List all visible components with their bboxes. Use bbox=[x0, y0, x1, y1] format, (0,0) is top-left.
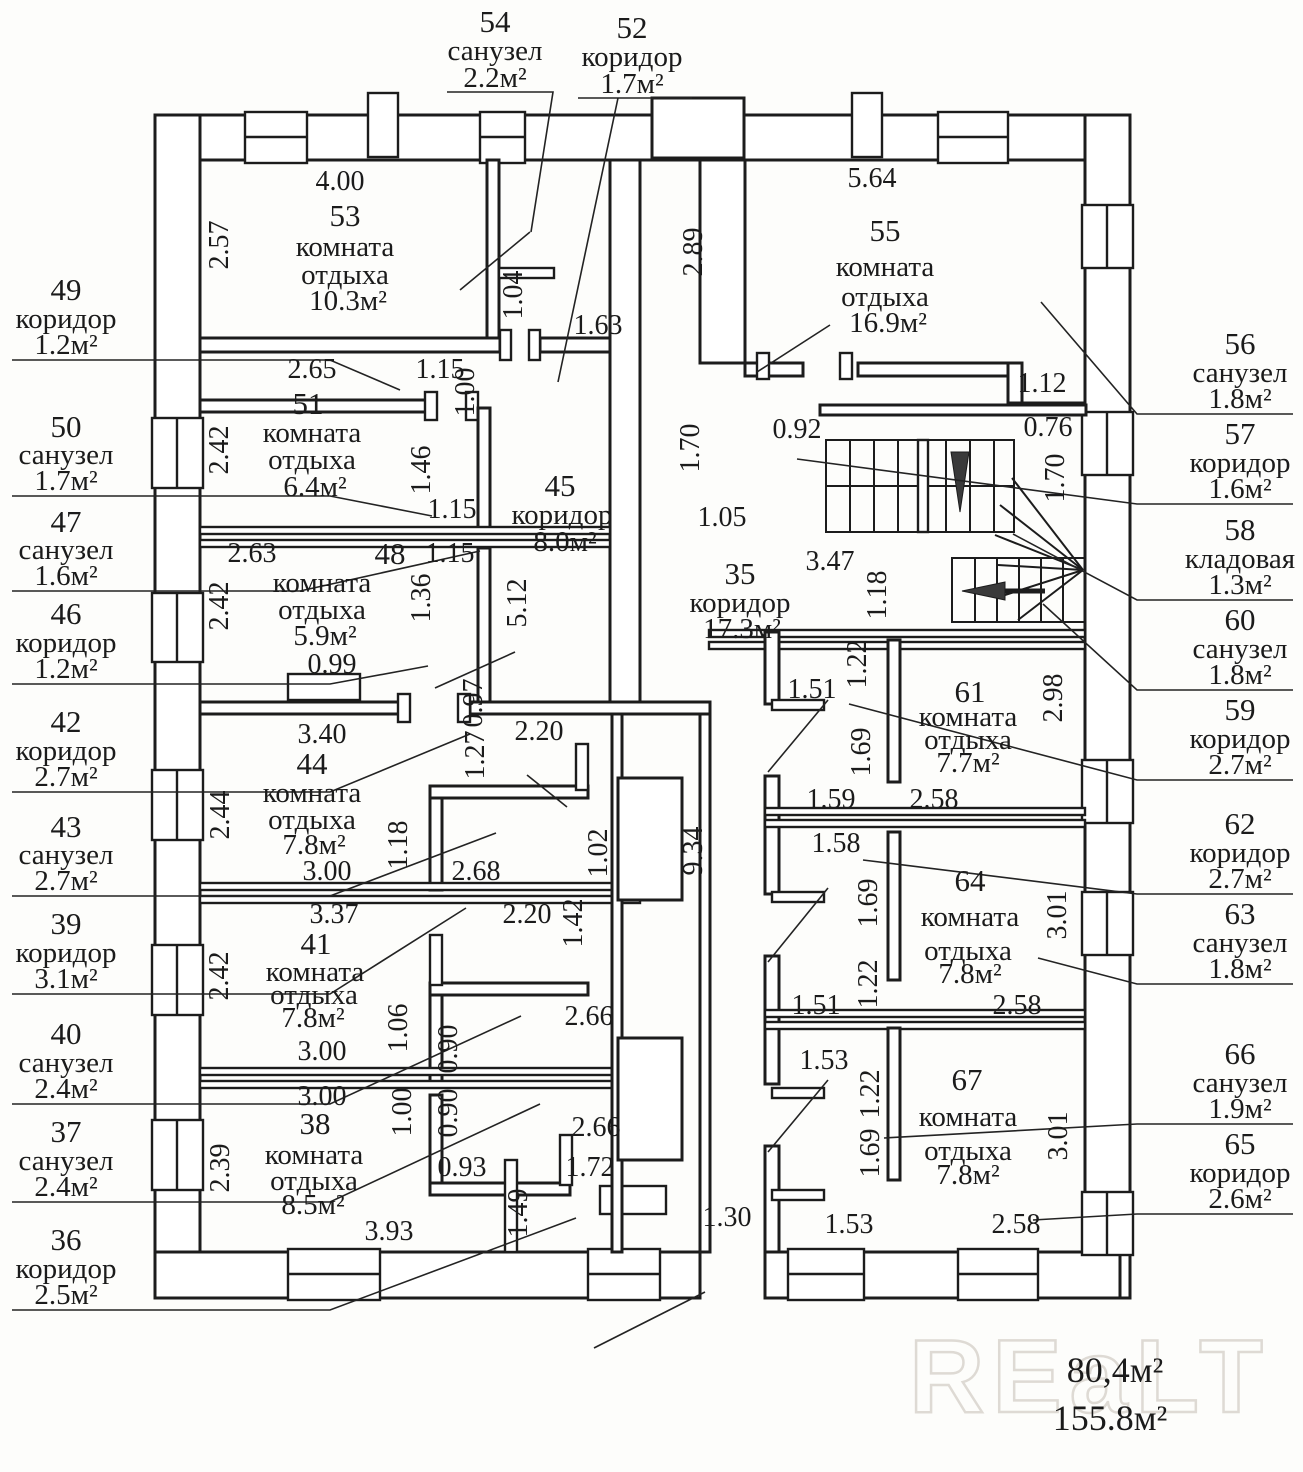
dim-label: 2.63 bbox=[228, 538, 277, 569]
dim-label: 2.20 bbox=[515, 716, 564, 747]
floor-plan-page: REaLT bbox=[0, 0, 1303, 1472]
dim-label: 1.53 bbox=[825, 1209, 874, 1240]
room-35-number: 35 bbox=[725, 556, 756, 591]
callout-43-area: 2.7м² bbox=[34, 865, 98, 897]
callout-50-area: 1.7м² bbox=[34, 465, 98, 497]
callout-59-area: 2.7м² bbox=[1208, 749, 1272, 781]
dim-label: 1.49 bbox=[503, 1189, 534, 1238]
room-53-number: 53 bbox=[330, 198, 361, 233]
room-64-name1: комната bbox=[921, 901, 1020, 933]
room-44-number: 44 bbox=[297, 746, 329, 781]
dim-label: 3.00 bbox=[298, 1081, 347, 1112]
room-64-area: 7.8м² bbox=[938, 958, 1002, 990]
stair-arrow-left bbox=[962, 582, 1005, 600]
dim-label: 0.97 bbox=[458, 679, 489, 728]
callout-47-area: 1.6м² bbox=[34, 560, 98, 592]
dim-label: 3.00 bbox=[298, 1036, 347, 1067]
room-38-area: 8.5м² bbox=[281, 1189, 345, 1221]
dim-label: 2.42 bbox=[204, 426, 235, 475]
dim-label: 1.51 bbox=[792, 990, 841, 1021]
room-64-number: 64 bbox=[955, 863, 987, 898]
callout-39-area: 3.1м² bbox=[34, 963, 98, 995]
dim-label: 1.42 bbox=[558, 899, 589, 948]
room-55-name1: комната bbox=[836, 251, 935, 283]
dim-label: 2.39 bbox=[205, 1144, 236, 1193]
dim-label: 3.47 bbox=[806, 546, 855, 577]
callout-42-number: 42 bbox=[51, 704, 82, 739]
dim-label: 1.69 bbox=[855, 1129, 886, 1178]
dim-label: 2.66 bbox=[565, 1001, 614, 1032]
dim-label: 2.58 bbox=[992, 1209, 1041, 1240]
callout-60-number: 60 bbox=[1225, 602, 1256, 637]
dim-label: 1.53 bbox=[800, 1045, 849, 1076]
total-area-lower: 155.8м² bbox=[1053, 1398, 1168, 1438]
callout-37-area: 2.4м² bbox=[34, 1171, 98, 1203]
callout-57-number: 57 bbox=[1225, 416, 1256, 451]
callout-36-number: 36 bbox=[51, 1222, 82, 1257]
callout-46-area: 1.2м² bbox=[34, 653, 98, 685]
callout-65-number: 65 bbox=[1225, 1126, 1256, 1161]
dim-label: 2.89 bbox=[678, 228, 709, 277]
dim-label: 0.90 bbox=[433, 1025, 464, 1074]
room-51-area: 6.4м² bbox=[283, 471, 347, 503]
room-45-number: 45 bbox=[545, 468, 576, 503]
dim-label: 1.02 bbox=[583, 829, 614, 878]
dim-label: 0.93 bbox=[438, 1152, 487, 1183]
dim-label: 3.01 bbox=[1042, 891, 1073, 940]
room-55-number: 55 bbox=[870, 213, 901, 248]
dim-label: 1.27 bbox=[460, 731, 491, 780]
dim-label: 1.12 bbox=[1018, 368, 1067, 399]
dim-label: 2.20 bbox=[503, 899, 552, 930]
callout-54-area: 2.2м² bbox=[463, 62, 527, 94]
callout-58-number: 58 bbox=[1225, 512, 1256, 547]
dim-label: 1.06 bbox=[383, 1004, 414, 1053]
callout-62-number: 62 bbox=[1225, 806, 1256, 841]
room-67-number: 67 bbox=[952, 1062, 983, 1097]
dim-label: 1.05 bbox=[698, 502, 747, 533]
dim-label: 1.30 bbox=[703, 1202, 752, 1233]
dim-label: 1.70 bbox=[1040, 454, 1071, 503]
dim-label: 1.69 bbox=[853, 879, 884, 928]
callout-54-number: 54 bbox=[480, 4, 512, 39]
callout-42-area: 2.7м² bbox=[34, 761, 98, 793]
callout-66-area: 1.9м² bbox=[1208, 1093, 1272, 1125]
dim-label: 1.22 bbox=[853, 960, 884, 1009]
dim-label: 5.12 bbox=[502, 579, 533, 628]
dim-label: 1.36 bbox=[406, 574, 437, 623]
callout-49-area: 1.2м² bbox=[34, 329, 98, 361]
dim-label: 1.59 bbox=[807, 784, 856, 815]
dim-label: 9.34 bbox=[678, 827, 709, 876]
dim-label: 3.01 bbox=[1043, 1112, 1074, 1161]
dim-label: 3.40 bbox=[298, 719, 347, 750]
dim-label: 1.69 bbox=[846, 728, 877, 777]
room-55-area: 16.9м² bbox=[849, 307, 927, 339]
dim-label: 1.22 bbox=[842, 640, 873, 689]
callout-65-area: 2.6м² bbox=[1208, 1183, 1272, 1215]
callout-40-area: 2.4м² bbox=[34, 1073, 98, 1105]
dim-label: 1.18 bbox=[383, 821, 414, 870]
callout-56-number: 56 bbox=[1225, 326, 1256, 361]
callout-57-area: 1.6м² bbox=[1208, 473, 1272, 505]
room-45-area: 8.0м² bbox=[533, 526, 597, 558]
dim-label: 4.00 bbox=[316, 166, 365, 197]
callout-52-area: 1.7м² bbox=[600, 68, 664, 100]
dim-label: 2.66 bbox=[572, 1112, 621, 1143]
callout-56-area: 1.8м² bbox=[1208, 383, 1272, 415]
dim-label: 5.64 bbox=[848, 163, 897, 194]
dim-label: 2.68 bbox=[452, 856, 501, 887]
room-48-area: 5.9м² bbox=[293, 620, 357, 652]
dim-label: 1.04 bbox=[498, 271, 529, 320]
total-area-upper: 80,4м² bbox=[1067, 1350, 1164, 1390]
dim-label: 1.15 bbox=[428, 494, 477, 525]
dim-label: 0.76 bbox=[1024, 412, 1073, 443]
dim-label: 2.98 bbox=[1038, 674, 1069, 723]
dim-label: 1.00 bbox=[387, 1088, 418, 1137]
room-35-area: 17.3м² bbox=[703, 613, 781, 645]
callout-62-area: 2.7м² bbox=[1208, 863, 1272, 895]
floor-plan-drawing: REaLT bbox=[0, 0, 1303, 1472]
room-53-area: 10.3м² bbox=[309, 285, 387, 317]
room-61-area: 7.7м² bbox=[936, 747, 1000, 779]
dim-label: 0.90 bbox=[433, 1089, 464, 1138]
callout-36-area: 2.5м² bbox=[34, 1279, 98, 1311]
callout-63-number: 63 bbox=[1225, 896, 1256, 931]
dim-label: 0.99 bbox=[308, 649, 357, 680]
dim-label: 1.58 bbox=[812, 828, 861, 859]
room-41-area: 7.8м² bbox=[281, 1002, 345, 1034]
callout-39-number: 39 bbox=[51, 906, 82, 941]
dim-label: 0.92 bbox=[773, 414, 822, 445]
dim-label: 2.57 bbox=[204, 221, 235, 270]
room-67-name1: комната bbox=[919, 1101, 1018, 1133]
dim-label: 2.58 bbox=[910, 784, 959, 815]
room-67-area: 7.8м² bbox=[936, 1159, 1000, 1191]
dim-label: 1.15 bbox=[426, 538, 475, 569]
callout-49-number: 49 bbox=[51, 272, 82, 307]
dim-label: 1.22 bbox=[855, 1070, 886, 1119]
right-callouts: 56 санузел 1.8м² 57 коридор 1.6м² 58 кла… bbox=[1185, 326, 1295, 1215]
dim-label: 2.65 bbox=[288, 354, 337, 385]
callout-66-number: 66 bbox=[1225, 1036, 1256, 1071]
dim-label: 3.00 bbox=[303, 856, 352, 887]
dim-label: 1.70 bbox=[675, 424, 706, 473]
dim-label: 1.00 bbox=[450, 368, 481, 417]
room-51-number: 51 bbox=[293, 386, 324, 421]
dim-label: 1.18 bbox=[862, 571, 893, 620]
callout-37-number: 37 bbox=[51, 1114, 82, 1149]
central-corridor-walls bbox=[612, 714, 710, 1252]
dim-label: 1.72 bbox=[566, 1152, 615, 1183]
callout-58-area: 1.3м² bbox=[1208, 569, 1272, 601]
dim-label: 2.58 bbox=[993, 990, 1042, 1021]
dim-label: 1.51 bbox=[788, 674, 837, 705]
dim-label: 2.44 bbox=[205, 791, 236, 840]
dim-label: 2.42 bbox=[204, 952, 235, 1001]
callout-46-number: 46 bbox=[51, 596, 82, 631]
callout-60-area: 1.8м² bbox=[1208, 659, 1272, 691]
dim-label: 1.63 bbox=[574, 310, 623, 341]
dim-label: 3.93 bbox=[365, 1216, 414, 1247]
room-48-number: 48 bbox=[375, 536, 406, 571]
callout-52-number: 52 bbox=[617, 10, 648, 45]
callout-40-number: 40 bbox=[51, 1016, 82, 1051]
dim-label: 2.42 bbox=[204, 582, 235, 631]
dim-label: 1.46 bbox=[406, 446, 437, 495]
callout-59-number: 59 bbox=[1225, 692, 1256, 727]
callout-63-area: 1.8м² bbox=[1208, 953, 1272, 985]
top-callouts: 54 санузел 2.2м² 52 коридор 1.7м² bbox=[448, 4, 683, 100]
dim-label: 3.37 bbox=[310, 899, 359, 930]
